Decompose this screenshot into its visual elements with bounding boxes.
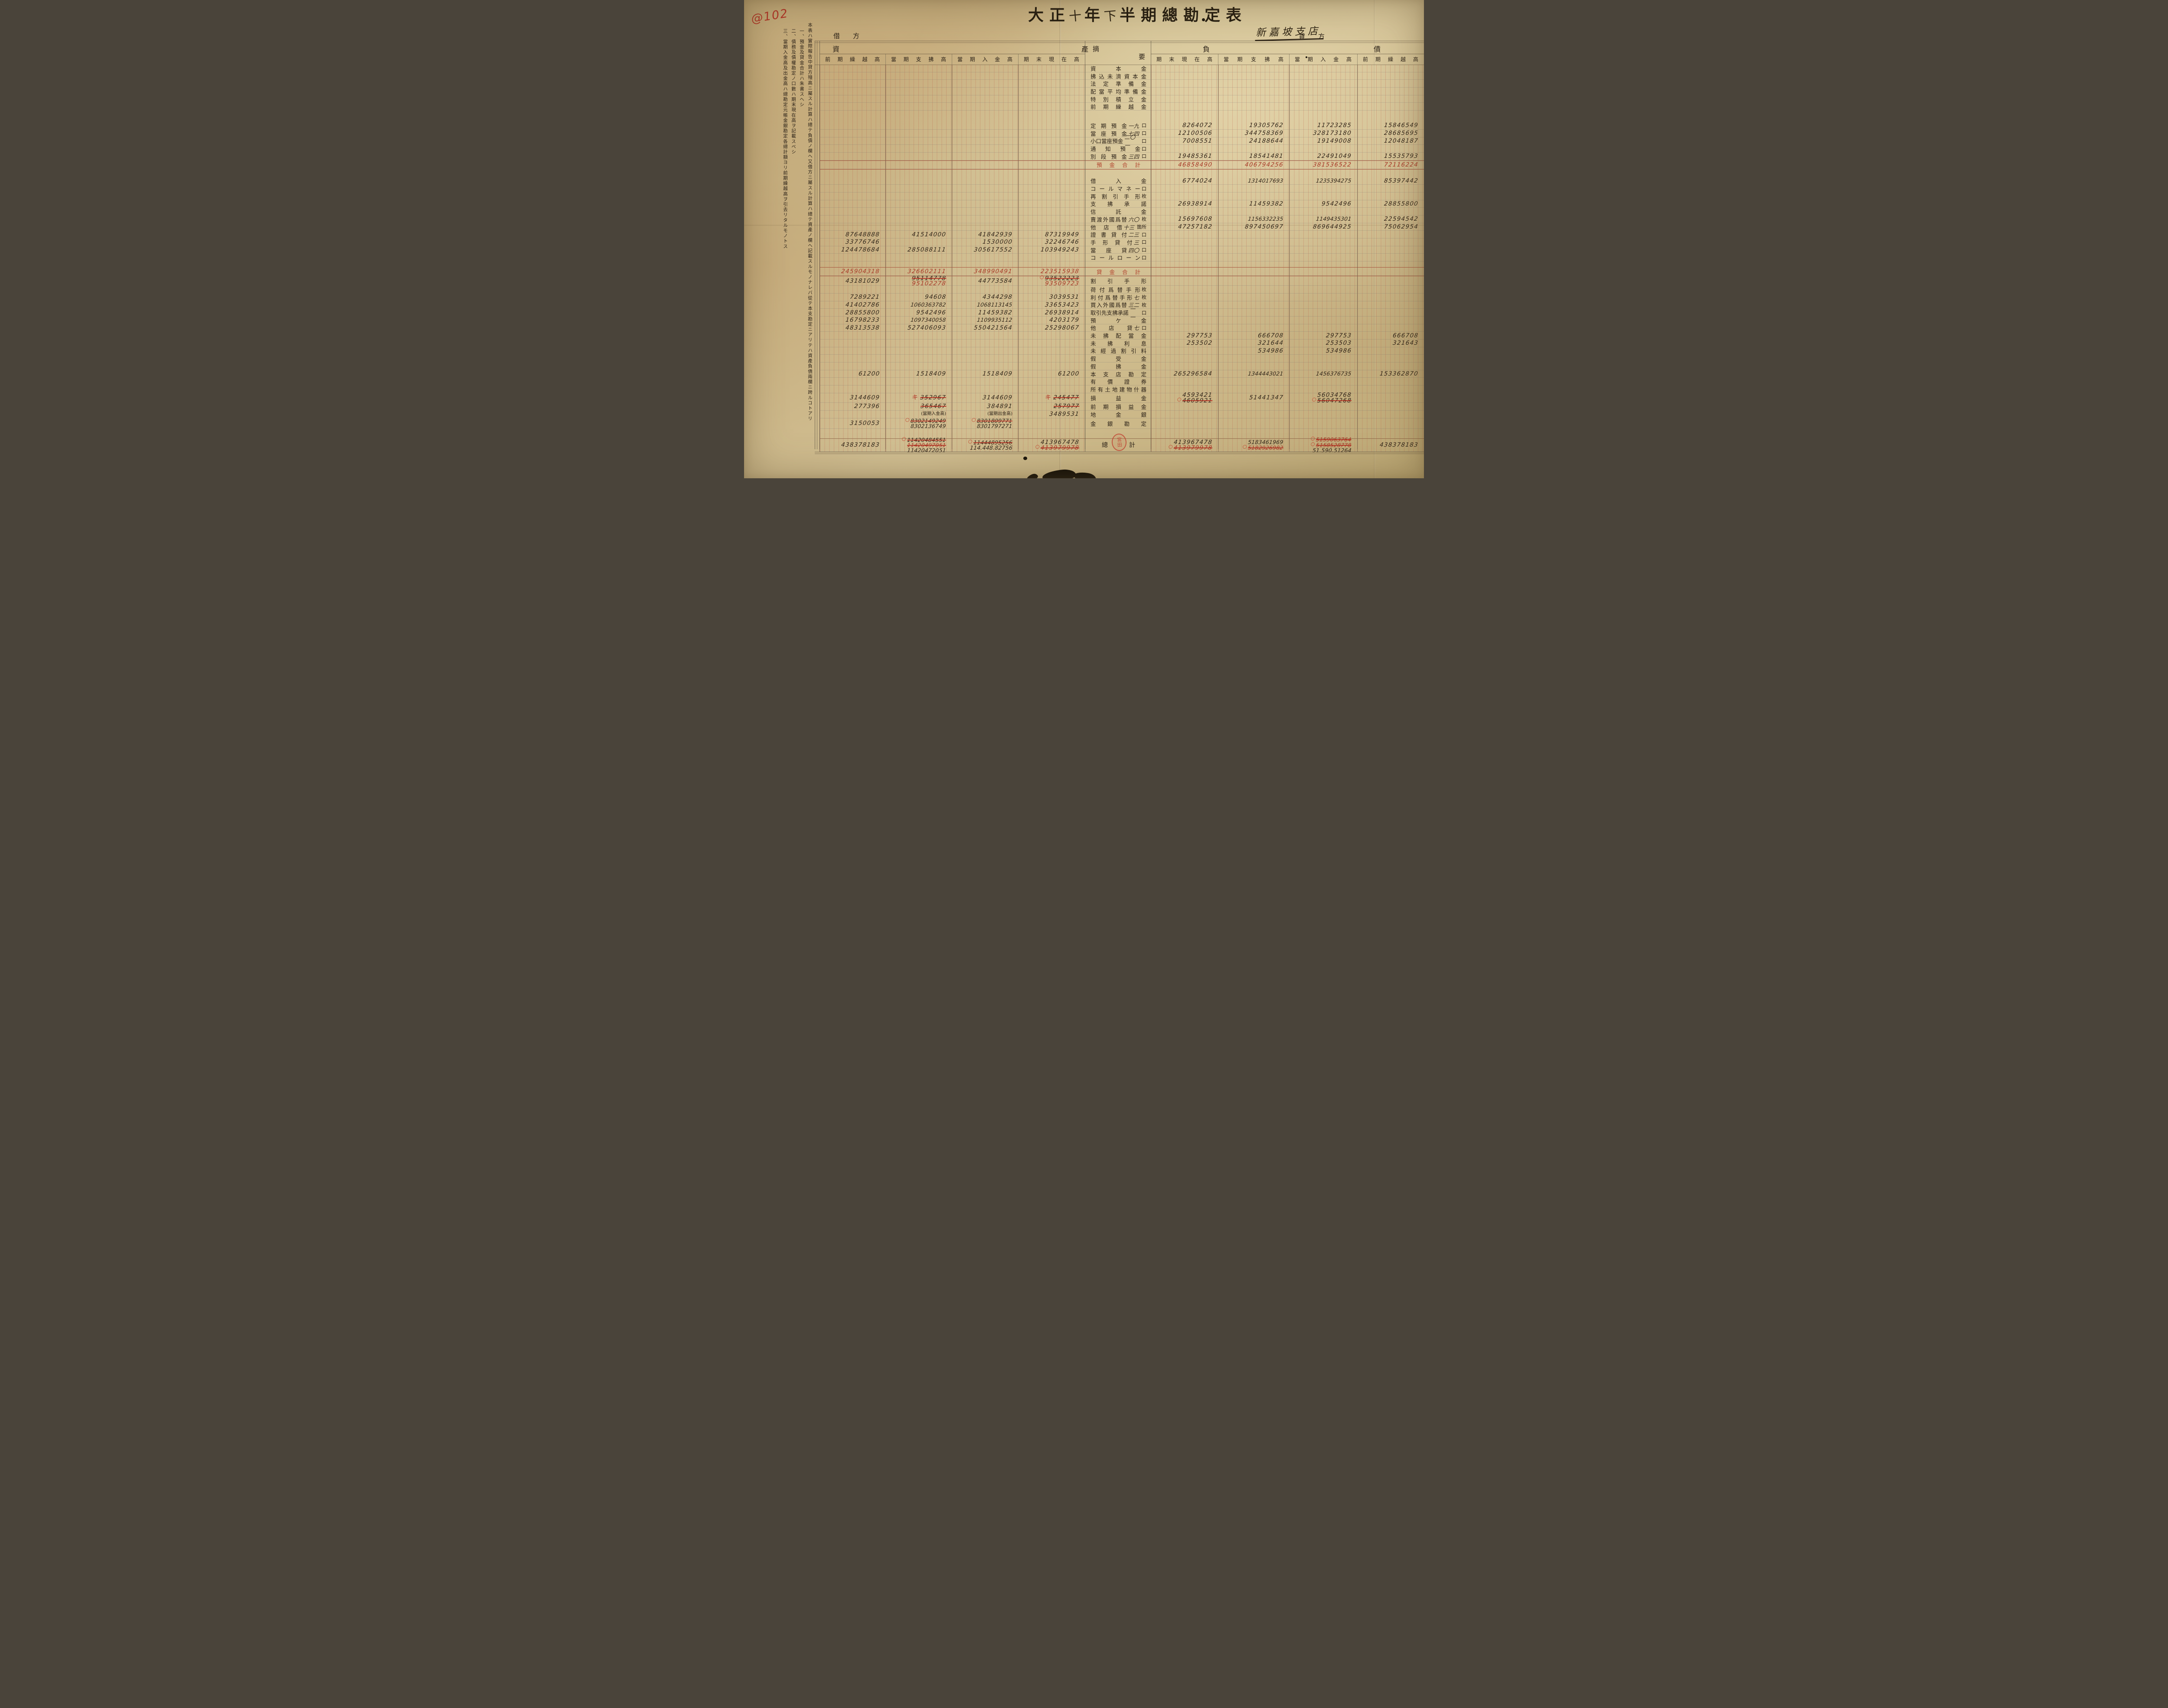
amount-cell: 344758369 [1218, 130, 1289, 137]
amount-cell: 381536522 [1289, 161, 1357, 169]
amount-cell [885, 95, 952, 103]
amount-cell [1289, 88, 1357, 95]
account-label: 假拂金 [1091, 362, 1146, 370]
amount-cell [1357, 268, 1424, 276]
amount-cell [1018, 193, 1085, 200]
amount-cell [1289, 378, 1357, 385]
amount-cell [1218, 276, 1289, 286]
amount: 5182926982 [1243, 445, 1284, 451]
account-label-cell: 預金合計 [1085, 161, 1151, 169]
amount-cell [952, 161, 1018, 169]
column-headers-row: 前期繰越高當期支拂高當期入金高期末現在高期末現在高當期支拂高當期入金高前期繰越高 [820, 54, 1424, 65]
amount-cell: 61200 [820, 370, 885, 378]
account-label: 未拂利息 [1091, 339, 1146, 347]
amount-cell [820, 286, 885, 294]
account-label: 所有土地建物什器 [1091, 385, 1146, 393]
account-label-cell: 割引手形 [1085, 276, 1151, 286]
amount-cell [885, 80, 952, 88]
amount-cell [1151, 411, 1218, 418]
amount: 56034768 [1317, 392, 1352, 398]
amount: 15846549 [1384, 123, 1418, 128]
amount: 12100506 [1178, 131, 1212, 136]
account-label: 借入金 [1091, 176, 1146, 185]
amount-cell [1151, 88, 1218, 95]
amount-cell: 305617552 [952, 246, 1018, 254]
amount-cell: 1530000 [952, 238, 1018, 246]
unit-label: 口 [1142, 153, 1146, 160]
amount: 253503 [1326, 340, 1352, 346]
amount-cell: 534986 [1218, 347, 1289, 355]
account-label: 割引手形 [1091, 277, 1146, 285]
unit-label: 枚 [1142, 216, 1146, 222]
amount-cell: 47257182 [1151, 223, 1218, 231]
margin-note: 三、當期入金高及出金高ハ總勘定元帳金銀勘定各總計額ヨリ前期繰越高ヲ引去リタルモノ… [781, 23, 789, 452]
amount-cell: 11459382 [952, 309, 1018, 317]
amount-cell [885, 170, 952, 177]
amount: 3144609 [982, 395, 1012, 400]
amount: 305617552 [973, 247, 1012, 252]
account-label: 賣渡外國爲替 [1091, 215, 1127, 223]
amount: 41402786 [845, 302, 880, 307]
amount-cell [1218, 65, 1289, 72]
amount-cell [1018, 103, 1085, 111]
amount-cell [1151, 301, 1218, 309]
amount-cell [885, 355, 952, 363]
table-row-prev-period-carryover: 前期繰越金 [820, 103, 1424, 111]
account-label-cell: 未經過割引料 [1085, 347, 1151, 355]
column-divider [1218, 54, 1218, 449]
ink-blot [1026, 473, 1038, 478]
amount-cell [1357, 103, 1424, 111]
account-label-cell [1085, 170, 1151, 177]
account-label: 貸金合計 [1091, 268, 1146, 276]
amount: 22491049 [1317, 153, 1352, 159]
margin-notes: 本表ハ實際報告中貸方殘高ニ屬スル計算ハ總テ負債ノ欄ヘ又借方ニ屬スル計算ハ總テ資產… [780, 23, 813, 452]
amount: 41842939 [978, 232, 1012, 237]
amount-cell [1151, 403, 1218, 411]
amount-cell: 19485361 [1151, 153, 1218, 160]
amount-cell [1218, 95, 1289, 103]
account-label-cell: 特別積立金 [1085, 95, 1151, 103]
account-label: 小口當座預金 [1091, 137, 1123, 145]
amount-cell: 265296584 [1151, 370, 1218, 378]
amount-cell: 51834619695182926982 [1218, 439, 1289, 452]
amount-cell [1357, 355, 1424, 363]
amount-cell: 15697608 [1151, 216, 1218, 223]
amount-cell: 321643 [1357, 340, 1424, 347]
amount-cell: 4344298 [952, 294, 1018, 301]
amount-cell: 8264072 [1151, 122, 1218, 130]
title-year-handwritten: 十 [1068, 6, 1082, 25]
amount-cell [1357, 309, 1424, 317]
amount-cell [1357, 111, 1424, 122]
amount-cell [1357, 317, 1424, 324]
account-label-cell: 手形貸付三口 [1085, 238, 1151, 246]
amount-cell [1357, 185, 1424, 193]
amount-cell: 4203179 [1018, 317, 1085, 324]
amount: 3039531 [1049, 294, 1079, 300]
amount-cell: 41514000 [885, 231, 952, 238]
amount-cell [1018, 80, 1085, 88]
account-label-cell: 利付爲替手形七枚 [1085, 294, 1151, 301]
amount-cell [1218, 301, 1289, 309]
account-label-cell: 預ケ金 [1085, 317, 1151, 324]
amount: 344758369 [1244, 131, 1283, 136]
summary-header: 摘 [1093, 44, 1099, 53]
amount: 257977 [1053, 404, 1080, 409]
amount-cell: 41402786 [820, 301, 885, 309]
amount-cell [885, 378, 952, 385]
column-divider [1018, 54, 1019, 449]
amount-cell [1357, 347, 1424, 355]
amount-cell [1357, 378, 1424, 385]
amount-cell: 19149008 [1289, 137, 1357, 145]
amount: 365467 [920, 404, 947, 409]
amount-cell [1357, 301, 1424, 309]
ledger-sheet: @102 大正十年下半期總勘定表 新嘉坡支店 借方 貸方 本表ハ實際報告中貸方殘… [744, 0, 1424, 478]
account-label-cell: 荷付爲替手形枚 [1085, 286, 1151, 294]
amount-cell [1151, 268, 1218, 276]
amount-cell [820, 111, 885, 122]
assets-group-header: 資產 [833, 43, 1088, 54]
amount-cell: 9511477895102278 [885, 276, 952, 286]
amount: 328173180 [1313, 131, 1352, 136]
amount-cell [1357, 254, 1424, 261]
table-row-legal-reserve: 法定準備金 [820, 80, 1424, 88]
amount: 223515938 [1040, 269, 1079, 274]
amount-cell [820, 223, 885, 231]
amount-cell: 44773584 [952, 276, 1018, 286]
amount-cell [1357, 145, 1424, 153]
amount-cell [1357, 208, 1424, 216]
table-row-bought-foreign-exchange: 414027861060363782106811314533653423買入外國… [820, 301, 1424, 309]
amount-cell: 3489531 [1018, 411, 1085, 418]
handwritten-count: 四〇 [1128, 246, 1139, 254]
account-label-cell: 法定準備金 [1085, 80, 1151, 88]
table-row-customer-acceptances: 2885580095424961145938226938914取引先支拂承諾一一… [820, 309, 1424, 317]
amount-cell [1289, 65, 1357, 72]
amount-cell [820, 193, 885, 200]
title-era: 大正 [1028, 3, 1071, 25]
amount-cell [885, 103, 952, 111]
amount-cell: 285088111 [885, 246, 952, 254]
amount-cell [1151, 208, 1218, 216]
amount-cell: 438378183 [1357, 439, 1424, 452]
amount-cell: 869644925 [1289, 223, 1357, 231]
unit-label: 枚 [1142, 294, 1146, 300]
amount-cell [820, 332, 885, 340]
amount-cell: 22491049 [1289, 153, 1357, 160]
account-label-cell: 本支店勘定 [1085, 370, 1151, 378]
amount-cell [1018, 208, 1085, 216]
amount-cell [1289, 170, 1357, 177]
title-rest: 半期總勘定表 [1120, 3, 1247, 25]
account-label: 支拂承諾 [1091, 199, 1146, 208]
amount-cell [1357, 231, 1424, 238]
amount-cell [1357, 246, 1424, 254]
amount-cell [1289, 294, 1357, 301]
margin-note: 本表ハ實際報告中貸方殘高ニ屬スル計算ハ總テ負債ノ欄ヘ又借方ニ屬スル計算ハ總テ資產… [806, 23, 813, 452]
amount: 245904318 [841, 269, 880, 274]
amount-cell [1289, 238, 1357, 246]
amount-cell [1289, 324, 1357, 332]
table-row-sold-foreign-exchange: 賣渡外國爲替六〇枚1569760811563322351149435301225… [820, 216, 1424, 223]
column-divider [1289, 54, 1290, 449]
table-row-small-current-deposits: 小口當座預金二〇一口700855124188644191490081204818… [820, 137, 1424, 145]
amount-cell [885, 261, 952, 267]
amount-cell [820, 216, 885, 223]
account-label: 荷付爲替手形 [1091, 285, 1140, 294]
amount-cell [1289, 185, 1357, 193]
amount-cell [952, 111, 1018, 122]
table-row-due-from-other-branches: 4831353852740609355042156425298067他店貸七口 [820, 324, 1424, 332]
amount: 406794256 [1244, 162, 1283, 167]
table-row-special-deposits: 別段預金三四口19485361185414812249104915535793 [820, 153, 1424, 160]
amount-cell [1018, 216, 1085, 223]
amount-cell [1357, 286, 1424, 294]
amount: 16798233 [845, 317, 880, 323]
amount-cell: 26938914 [1151, 200, 1218, 208]
amount-cell [820, 363, 885, 370]
amount-cell [1357, 80, 1424, 88]
amount-cell [1018, 385, 1085, 393]
amount-cell [1218, 145, 1289, 153]
amount-cell: 7008551 [1151, 137, 1218, 145]
amount-cell [952, 170, 1018, 177]
amount-cell [1289, 231, 1357, 238]
amount-cell [1357, 261, 1424, 267]
amount-cell [1018, 95, 1085, 103]
amount-cell [1218, 72, 1289, 80]
amount-cell [885, 238, 952, 246]
amount-cell: 1156332235 [1218, 216, 1289, 223]
account-label-cell: 支拂承諾 [1085, 200, 1151, 208]
account-label-cell: 拂込未濟資本金 [1085, 72, 1151, 80]
amount-cell [1151, 80, 1218, 88]
amount-cell [820, 122, 885, 130]
amount-cell [1357, 418, 1424, 429]
unit-label: 口 [1142, 324, 1146, 331]
amount-cell [1018, 347, 1085, 355]
amount-cell [1018, 130, 1085, 137]
amount-cell: 6774024 [1151, 177, 1218, 185]
amount-cell [952, 208, 1018, 216]
amount-cell: 11459382 [1218, 200, 1289, 208]
amount-cell [885, 177, 952, 185]
amount-cell [952, 177, 1018, 185]
amount-cell: 18541481 [1218, 153, 1289, 160]
amount-cell: 41842939 [952, 231, 1018, 238]
amount: 413967478 [1040, 440, 1079, 445]
amount-cell: 534986 [1289, 347, 1357, 355]
amount-cell [820, 95, 885, 103]
amount: 87319949 [1045, 232, 1079, 237]
account-label: 有價證券 [1091, 377, 1146, 385]
amount-cell [885, 347, 952, 355]
amount-cell [952, 185, 1018, 193]
amount-cell [820, 103, 885, 111]
amount-cell: 257977 [1018, 403, 1085, 411]
amount: 44773584 [978, 278, 1012, 284]
handwritten-count: 六〇 [1128, 215, 1139, 223]
amount-cell: 33776746 [820, 238, 885, 246]
table-row-suspense-payments: 假拂金 [820, 363, 1424, 370]
account-label-cell: 金銀勘定 [1085, 418, 1151, 429]
amount-cell: 26938914 [1018, 309, 1085, 317]
amount-cell [1289, 254, 1357, 261]
amount-cell: 87648888 [820, 231, 885, 238]
amount-cell [952, 137, 1018, 145]
amount: 666708 [1392, 333, 1419, 338]
amount: 48313538 [845, 325, 880, 330]
amount-cell [885, 145, 952, 153]
account-label-cell: 借入金 [1085, 177, 1151, 185]
amount-cell [1018, 261, 1085, 267]
amount-cell [1018, 286, 1085, 294]
amount: 277396 [854, 404, 880, 409]
amount-cell: 527406093 [885, 324, 952, 332]
amount: 11459382 [978, 310, 1012, 315]
account-label: 未拂配當金 [1091, 331, 1146, 340]
amount-cell: 297753 [1289, 332, 1357, 340]
amount-cell [1218, 418, 1289, 429]
account-label: 證書貸付 [1091, 230, 1127, 238]
amount-cell [1018, 355, 1085, 363]
amount-cell [952, 200, 1018, 208]
amount-cell [1151, 238, 1218, 246]
amount-cell [1018, 88, 1085, 95]
amount-cell: 438378183 [820, 439, 885, 452]
amount-cell [1151, 276, 1218, 286]
amount: 1149435301 [1316, 216, 1352, 222]
account-label-cell: 假拂金 [1085, 363, 1151, 370]
amount-cell [820, 80, 885, 88]
amount-cell [952, 347, 1018, 355]
amount-cell [820, 261, 885, 267]
column-note: (當期出金高) [987, 411, 1012, 417]
amount-cell [952, 378, 1018, 385]
amount: 19305762 [1249, 123, 1283, 128]
amount-cell [952, 122, 1018, 130]
table-row-time-deposits: 定期預金一九口8264072193057621172328515846549 [820, 122, 1424, 130]
amount-cell [1218, 231, 1289, 238]
amount: 94608 [924, 294, 947, 300]
amount-cell: 72116224 [1357, 161, 1424, 169]
amount-cell [952, 286, 1018, 294]
amount-cell: 15846549 [1357, 122, 1424, 130]
amount: 33653423 [1045, 302, 1079, 307]
amount-cell: 28685695 [1357, 130, 1424, 137]
amount-cell [1289, 145, 1357, 153]
amount-cell: 153362870 [1357, 370, 1424, 378]
amount-cell: 46858490 [1151, 161, 1218, 169]
amount-cell [1018, 111, 1085, 122]
amount-cell [885, 65, 952, 72]
account-label: 別段預金 [1091, 152, 1127, 160]
amount-cell: 11444895256114.448.82756 [952, 439, 1018, 452]
account-label-cell: 取引先支拂承諾一一口 [1085, 309, 1151, 317]
amount: 1060363782 [911, 302, 947, 307]
amount: 47257182 [1178, 224, 1212, 229]
column-header: 前期繰越高 [1357, 54, 1424, 65]
amount: 19485361 [1178, 153, 1212, 159]
amount-cell: 1235394275 [1289, 177, 1357, 185]
amount-cell [885, 137, 952, 145]
amount: 534986 [1326, 348, 1352, 353]
amount-cell [1218, 294, 1289, 301]
amount-cell [1018, 137, 1085, 145]
amount-cell [1018, 185, 1085, 193]
handwritten-count: 七 [1133, 323, 1139, 332]
amount-cell: 32246746 [1018, 238, 1085, 246]
amount-cell [1151, 347, 1218, 355]
amount: 43181029 [845, 278, 880, 284]
column-header: 當期入金高 [1289, 54, 1357, 65]
column-divider [1085, 41, 1085, 449]
account-label-cell: 當座貸四〇口 [1085, 246, 1151, 254]
amount-cell: 9542496 [1289, 200, 1357, 208]
amount: 3489531 [1049, 411, 1079, 417]
amount: 413967478 [1173, 440, 1212, 445]
account-label-cell: 有價證券 [1085, 378, 1151, 385]
amount-cell [820, 153, 885, 160]
amount-cell [820, 161, 885, 169]
amount: 321643 [1392, 340, 1419, 346]
column-divider [885, 54, 886, 449]
amount-cell [952, 429, 1018, 438]
account-label: 本支店勘定 [1091, 370, 1146, 378]
amount-cell: 348990491 [952, 268, 1018, 276]
amount-cell [1151, 231, 1218, 238]
amount-cell [1289, 246, 1357, 254]
amount-cell: 28855800 [1357, 200, 1424, 208]
amount-cell [952, 72, 1018, 80]
amount-cell [885, 153, 952, 160]
table-row-current-deposits: 當座預金七四口121005063447583693281731802868569… [820, 130, 1424, 137]
amount-cell [885, 340, 952, 347]
amount-cell [820, 170, 885, 177]
credit-header: 貸方 [1299, 32, 1338, 41]
amount-cell [1218, 111, 1289, 122]
column-header: 期末現在高 [1151, 54, 1218, 65]
amount-cell [1289, 411, 1357, 418]
unit-label: 口 [1142, 122, 1146, 129]
amount-cell [952, 88, 1018, 95]
table-row-cash-account: 3150053830214924983021367498301809771830… [820, 418, 1424, 429]
amount: 6774024 [1182, 178, 1212, 183]
amount-cell: 3144609 [952, 393, 1018, 403]
amount: 9542496 [916, 310, 946, 315]
amount-cell [820, 130, 885, 137]
liabilities-group-header: 負債 [1203, 43, 1381, 54]
table-row-suspense-receipts: 假受金 [820, 355, 1424, 363]
amount: 153362870 [1379, 371, 1418, 376]
amount: 869644925 [1313, 224, 1352, 229]
account-label-cell: 他店貸七口 [1085, 324, 1151, 332]
amount-cell [952, 340, 1018, 347]
amount: 1530000 [982, 239, 1012, 245]
amount: 1344443021 [1248, 371, 1284, 376]
amount: 24188644 [1249, 138, 1283, 144]
amount-cell: 12048187 [1357, 137, 1424, 145]
amount-cell: 114204845511142049705111420472051 [885, 439, 952, 452]
table-row-call-money: コールマネー口 [820, 185, 1424, 193]
unit-label: 口 [1142, 137, 1146, 144]
account-label-cell: 未拂利息 [1085, 340, 1151, 347]
amount-cell [820, 200, 885, 208]
unit-label: 口 [1142, 231, 1146, 238]
amount-cell [885, 122, 952, 130]
